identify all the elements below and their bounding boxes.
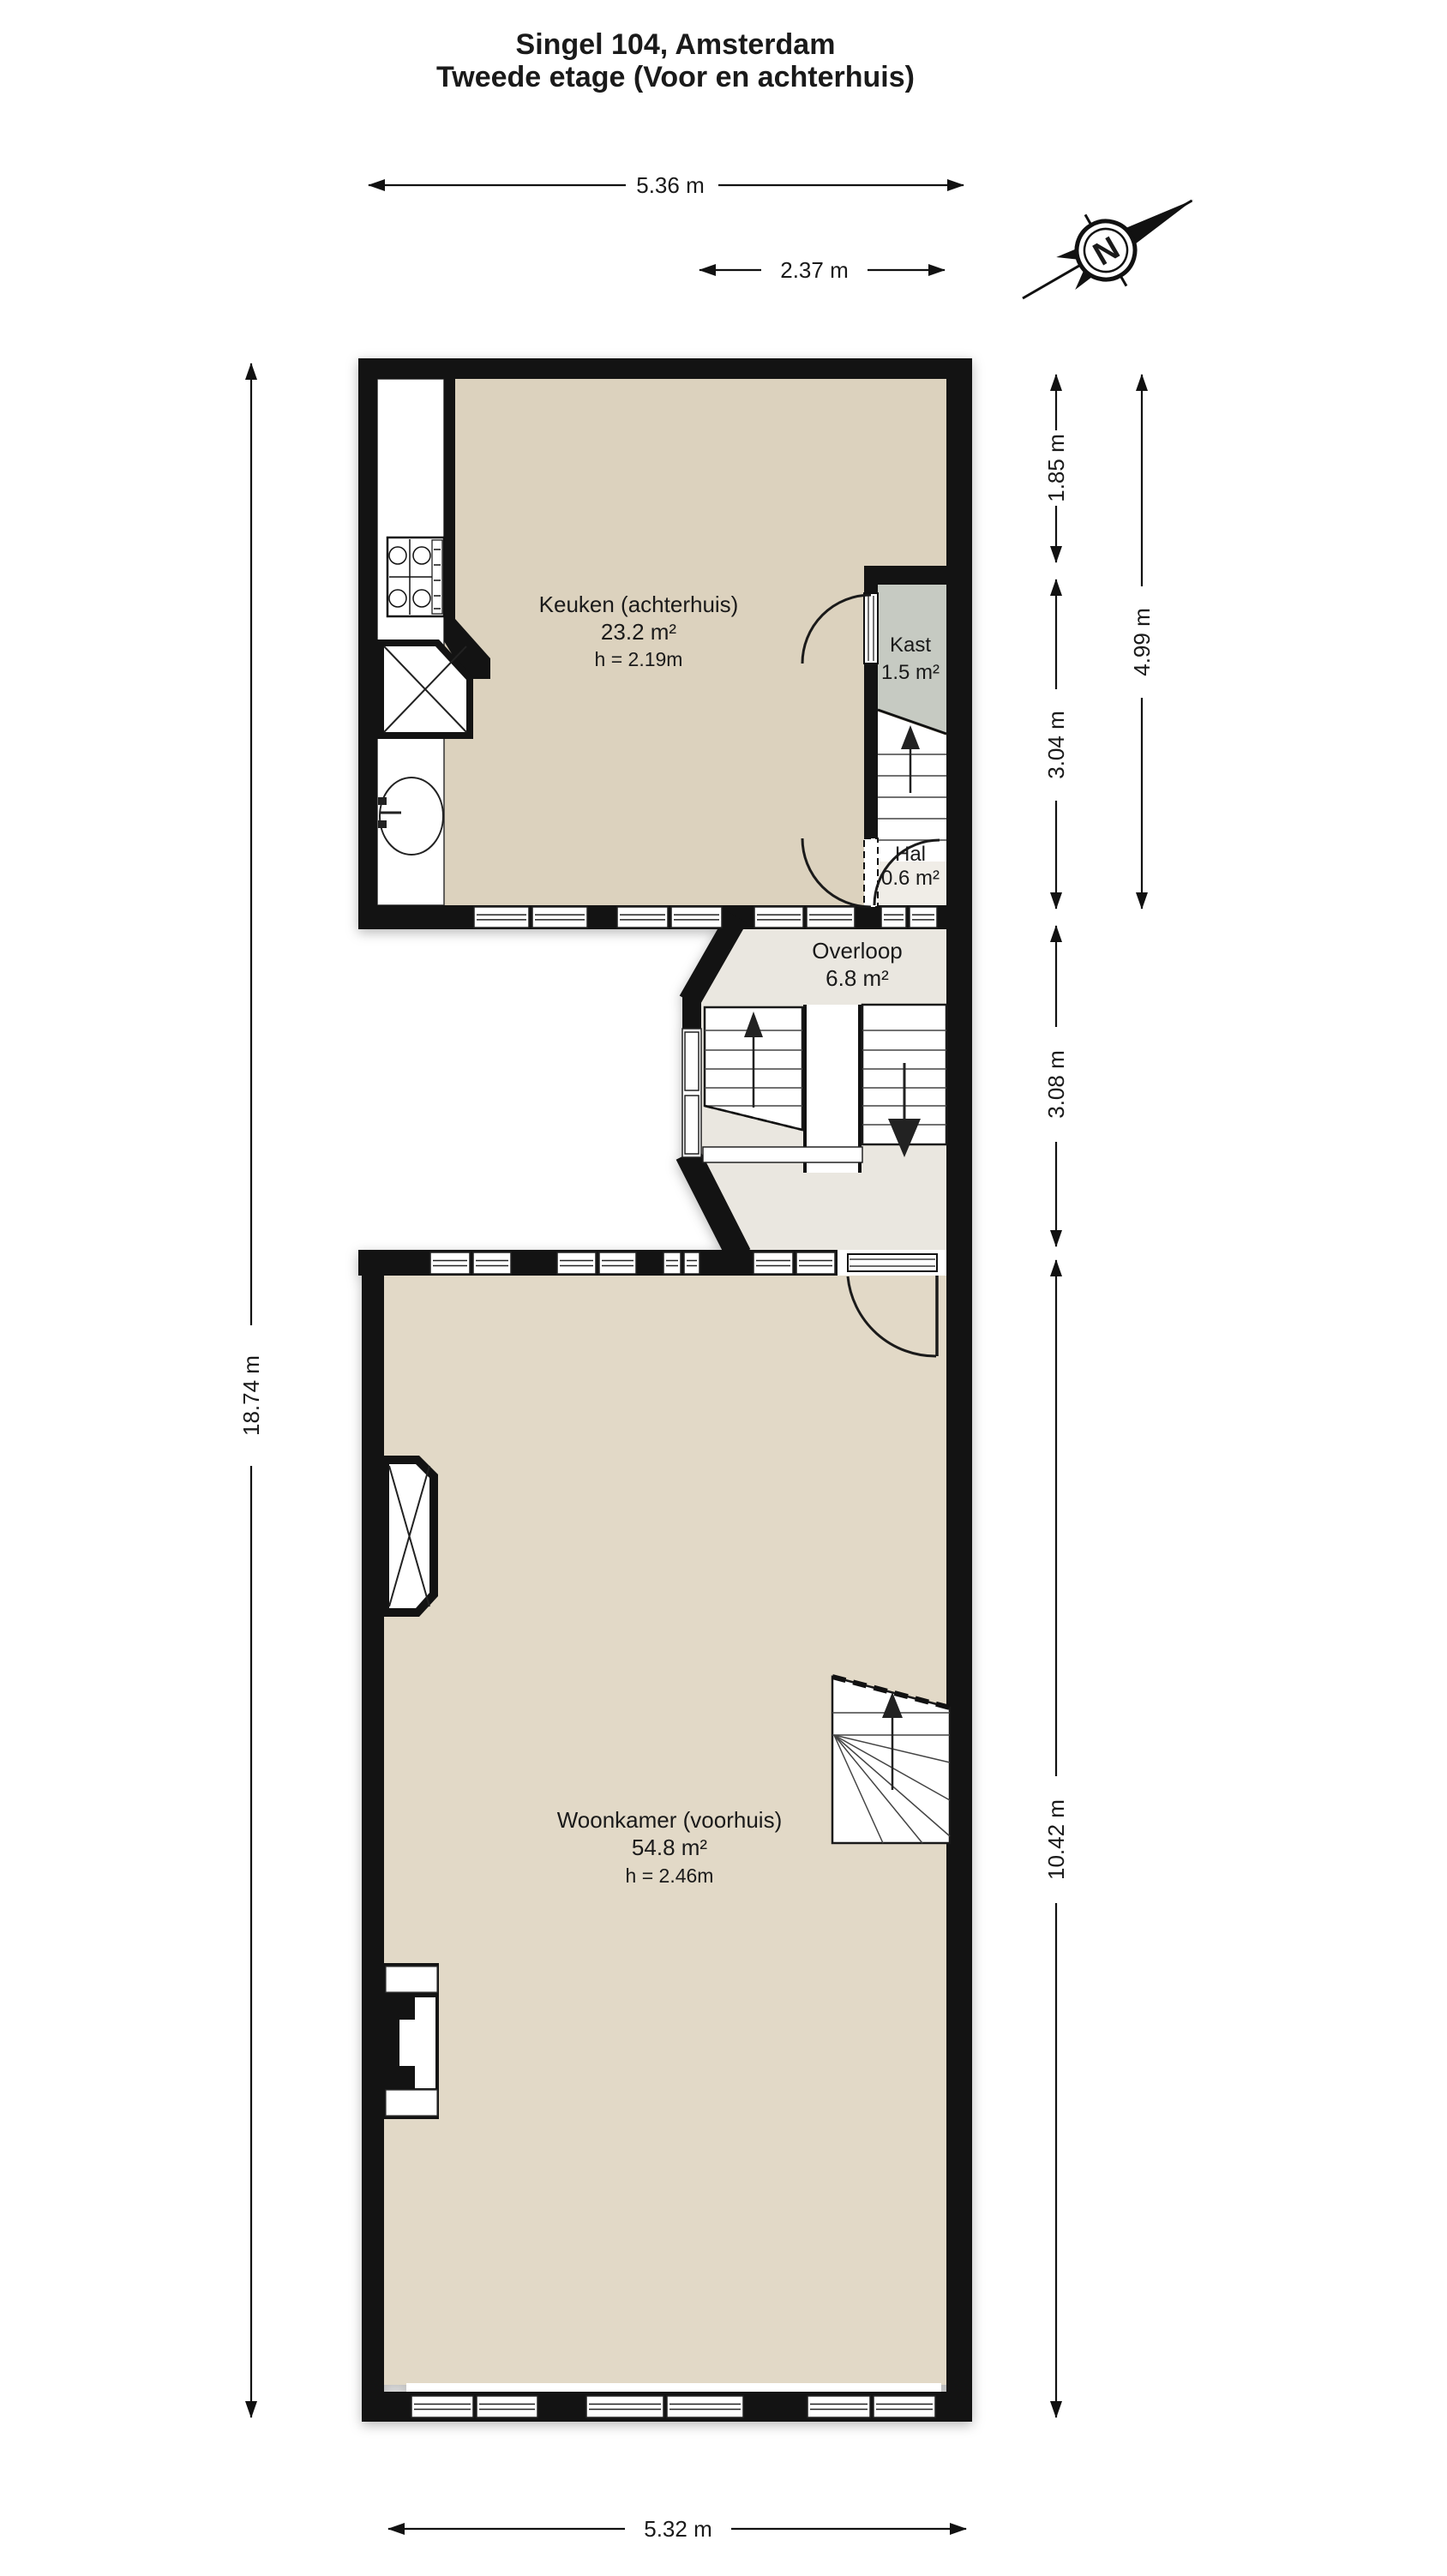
woonkamer-area: 54.8 m²	[632, 1834, 707, 1860]
dim-top-width-label: 5.36 m	[636, 172, 705, 198]
kast-door-leaf	[864, 593, 878, 664]
dim-overloop-width-label: 2.37 m	[780, 257, 849, 283]
woonkamer-left-wall	[362, 1250, 384, 2422]
dimension-bottom-width: 5.32 m	[388, 2516, 966, 2542]
keuken-ceiling: h = 2.19m	[595, 648, 683, 670]
kast-stairs	[878, 710, 946, 862]
overloop-shaft-window	[682, 1029, 701, 1157]
dimension-overloop-width: 2.37 m	[699, 257, 945, 283]
title-floor: Tweede etage (Voor en achterhuis)	[436, 61, 915, 93]
right-wall	[946, 358, 972, 2422]
woonkamer-shaft-box	[382, 1456, 438, 1617]
kast-floor	[878, 585, 946, 734]
kitchen-shaft-box	[377, 639, 473, 739]
stairs-landing-edge	[703, 1147, 862, 1162]
kitchen-left-wall	[358, 358, 377, 928]
woonkamer-ceiling: h = 2.46m	[626, 1864, 714, 1887]
floorplan-canvas: Singel 104, Amsterdam Tweede etage (Voor…	[0, 0, 1447, 2572]
dimension-top-width: 5.36 m	[369, 172, 964, 198]
hal-area: 0.6 m²	[881, 867, 940, 890]
sink-icon	[378, 778, 443, 855]
bottom-window-sill	[406, 2383, 941, 2392]
dimension-total-height: 18.74 m	[238, 363, 264, 2417]
hal-name: Hal	[895, 843, 926, 866]
woonkamer-name: Woonkamer (voorhuis)	[557, 1807, 783, 1833]
kast-area: 1.5 m²	[881, 661, 940, 684]
keuken-area: 23.2 m²	[601, 619, 676, 645]
kitchen-top-wall	[358, 358, 972, 379]
dim-bottom-width-label: 5.32 m	[644, 2516, 712, 2542]
overloop-area: 6.8 m²	[826, 965, 889, 991]
dimension-woonkamer-height: 10.42 m	[1043, 1260, 1069, 2417]
compass-icon: N	[1002, 164, 1214, 333]
fireplace	[384, 1963, 439, 2119]
kast-name: Kast	[890, 633, 931, 657]
dim-kitchen-lower-label: 3.04 m	[1043, 711, 1069, 779]
plan-title: Singel 104, Amsterdam Tweede etage (Voor…	[436, 28, 915, 93]
stove-icon	[387, 537, 444, 616]
dim-woonkamer-height-label: 10.42 m	[1043, 1799, 1069, 1880]
dimension-kitchen-upper: 1.85 m	[1043, 375, 1069, 562]
dim-total-height-label: 18.74 m	[238, 1355, 264, 1436]
dimension-kitchen-lower: 3.04 m	[1043, 579, 1069, 909]
title-address: Singel 104, Amsterdam	[516, 28, 836, 61]
overloop-name: Overloop	[812, 938, 903, 964]
dim-overloop-height-label: 3.08 m	[1043, 1050, 1069, 1119]
keuken-name: Keuken (achterhuis)	[539, 591, 739, 617]
dim-kitchen-total-label: 4.99 m	[1129, 608, 1155, 676]
floorplan-page: Singel 104, Amsterdam Tweede etage (Voor…	[0, 0, 1447, 2572]
woonkamer-door-leaf	[848, 1254, 937, 1271]
dim-kitchen-upper-label: 1.85 m	[1043, 434, 1069, 502]
dimension-kitchen-total: 4.99 m	[1129, 375, 1155, 909]
dimension-overloop-height: 3.08 m	[1043, 926, 1069, 1246]
